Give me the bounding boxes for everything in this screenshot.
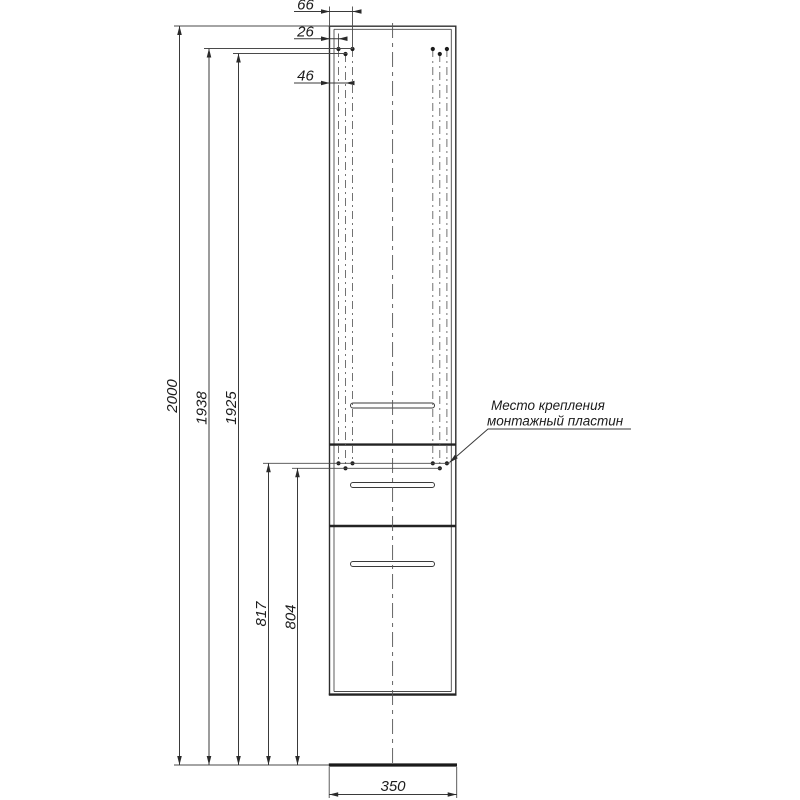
dim-label-hole-offset-edge: 26 bbox=[296, 24, 314, 41]
extension-lines bbox=[174, 7, 450, 766]
drawer-handle bbox=[351, 483, 435, 488]
dim-label-hole-offset-mid: 46 bbox=[297, 68, 314, 85]
dim-label-bottom-holes-outer: 817 bbox=[253, 601, 270, 627]
dim-label-base-width: 350 bbox=[380, 778, 406, 795]
dimension-bottom-holes-outer: 817 bbox=[253, 463, 271, 765]
dim-label-top-holes-outer: 1938 bbox=[194, 391, 211, 425]
mounting-note-line2: монтажный пластин bbox=[487, 414, 624, 429]
dimension-total-height: 2000 bbox=[164, 26, 182, 765]
mounting-note-line1: Место крепления bbox=[491, 398, 605, 413]
mounting-plate-annotation: Место крепления монтажный пластин bbox=[450, 398, 632, 463]
drawing-page: 2000 1938 1925 817 804 66 26 bbox=[0, 0, 800, 800]
dim-label-total-height: 2000 bbox=[164, 379, 181, 414]
handles bbox=[351, 403, 435, 567]
dimension-bottom-holes-mid: 804 bbox=[283, 468, 300, 765]
dim-label-top-holes-mid: 1925 bbox=[223, 391, 240, 425]
dimension-top-holes-outer: 1938 bbox=[194, 49, 212, 766]
dimension-top-holes-mid: 1925 bbox=[223, 54, 241, 766]
dim-label-bottom-holes-mid: 804 bbox=[283, 604, 300, 629]
dim-label-hole-offset-outer: 66 bbox=[297, 0, 314, 14]
dimension-base-width: 350 bbox=[329, 778, 457, 797]
dimension-hole-offset-outer: 66 bbox=[294, 0, 362, 14]
cabinet-technical-drawing: 2000 1938 1925 817 804 66 26 bbox=[0, 0, 800, 800]
